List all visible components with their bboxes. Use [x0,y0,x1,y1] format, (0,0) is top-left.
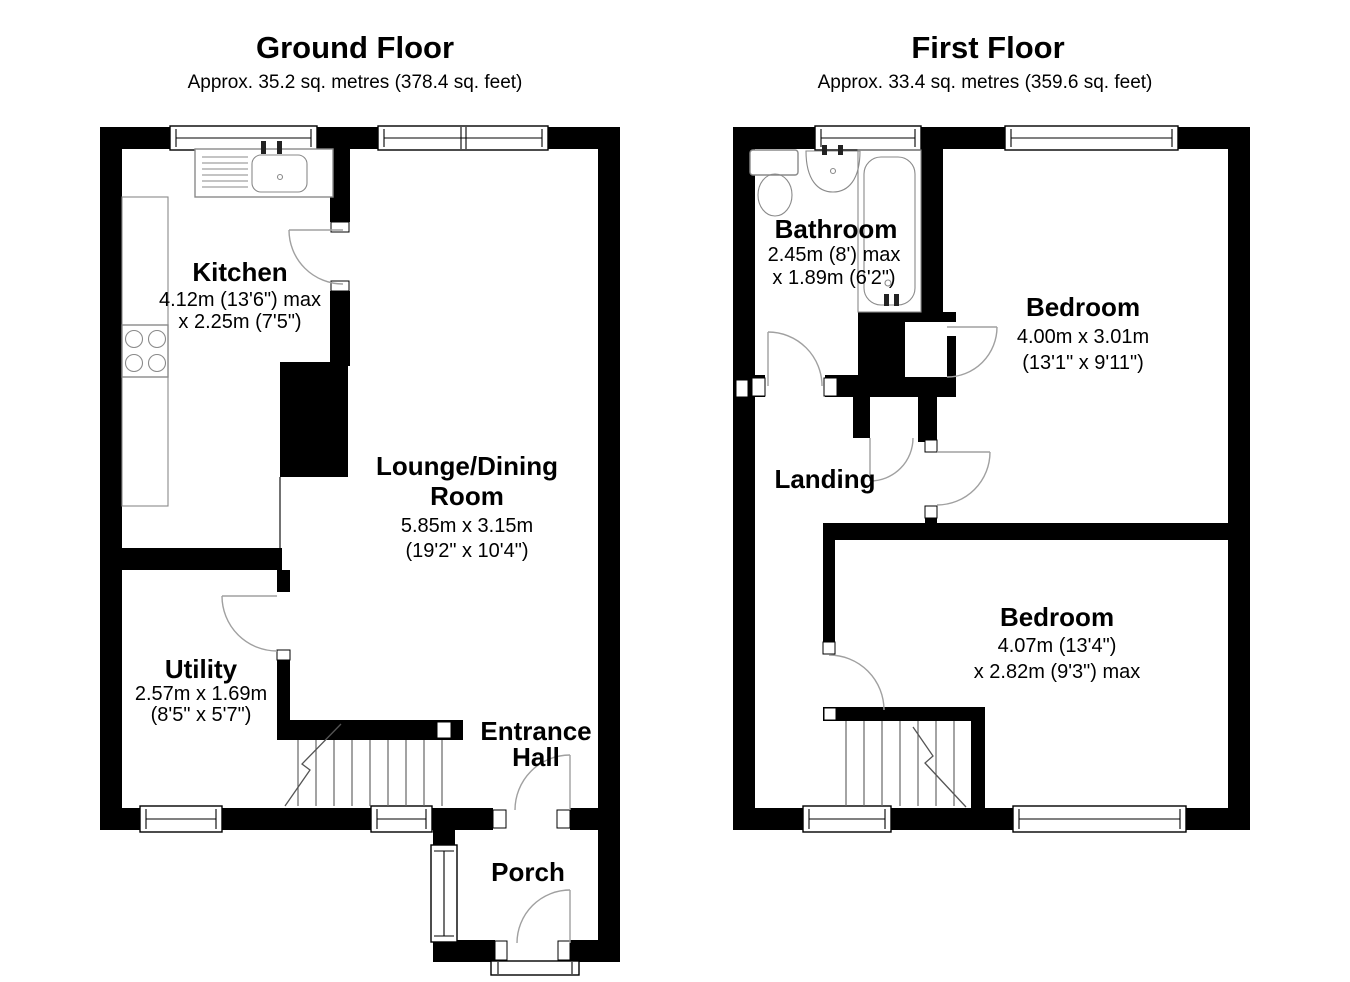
kitchen-window [170,126,317,150]
first-floor-plan: First Floor Approx. 33.4 sq. metres (359… [733,30,1250,832]
bathroom-door [768,332,822,386]
first-floor-title: First Floor [911,30,1064,65]
first-staircase [846,721,966,807]
bathroom-dim-2: x 1.89m (6'2") [772,267,895,289]
ground-floor-doors [222,230,570,943]
bathroom-window [815,126,921,150]
basin-fixture [806,145,860,192]
toilet-fixture [750,150,798,216]
porch-label: Porch [491,857,565,887]
lounge-window [378,126,548,150]
utility-dim-2: (8'5" x 5'7") [151,704,252,726]
utility-door [222,596,277,651]
kitchen-sink-fixture [195,141,333,197]
lounge-label-line2: Room [430,481,504,511]
kitchen-dim-1: 4.12m (13'6") max [159,289,321,311]
utility-label: Utility [165,654,238,684]
first-floor-subtitle: Approx. 33.4 sq. metres (359.6 sq. feet) [818,72,1153,93]
bedroom-front-dim-2: x 2.82m (9'3") max [974,661,1141,683]
hall-window [371,806,432,832]
ground-floor-door-jambs [277,222,570,960]
ground-floor-plan: Ground Floor Approx. 35.2 sq. metres (37… [100,30,620,975]
entrance-hall-label-line2: Hall [512,742,560,772]
porch-window [431,845,457,942]
hob-fixture [122,325,168,377]
stairs-direction-arrow [913,727,966,807]
ground-floor-walls [100,127,620,962]
utility-window [140,806,222,832]
lounge-dim-1: 5.85m x 3.15m [401,515,533,537]
utility-dim-1: 2.57m x 1.69m [135,683,267,705]
bedroom-rear-label: Bedroom [1026,292,1140,322]
bedroom-front-door [829,655,884,710]
kitchen-dim-2: x 2.25m (7'5") [178,311,301,333]
first-floor-door-jambs [736,378,937,720]
floorplan-page: Ground Floor Approx. 35.2 sq. metres (37… [0,0,1350,982]
landing-label: Landing [774,464,875,494]
ground-floor-title: Ground Floor [256,30,454,65]
lounge-label-line1: Lounge/Dining [376,451,558,481]
landing-cupboard-door [870,438,913,481]
porch-door-threshold [491,961,579,975]
bathroom-dim-1: 2.45m (8') max [768,244,901,266]
bedroom-rear-dim-1: 4.00m x 3.01m [1017,326,1149,348]
bathroom-label: Bathroom [775,214,898,244]
bedroom-front-dim-1: 4.07m (13'4") [998,635,1117,657]
landing-window [803,806,891,832]
bedroom-front-window [1013,806,1186,832]
bedroom-rear-dim-2: (13'1" x 9'11") [1022,352,1144,374]
bedroom-rear-door [937,452,990,505]
kitchen-label: Kitchen [192,257,287,287]
lounge-dim-2: (19'2" x 10'4") [405,540,528,562]
ground-floor-subtitle: Approx. 35.2 sq. metres (378.4 sq. feet) [188,72,523,93]
kitchen-door [289,230,343,284]
floorplan-canvas: Ground Floor Approx. 35.2 sq. metres (37… [0,0,1350,982]
bedroom-front-label: Bedroom [1000,602,1114,632]
porch-door [517,890,570,943]
bedroom-rear-window [1005,126,1178,150]
ground-floor-labels: Kitchen 4.12m (13'6") max x 2.25m (7'5")… [135,257,592,887]
